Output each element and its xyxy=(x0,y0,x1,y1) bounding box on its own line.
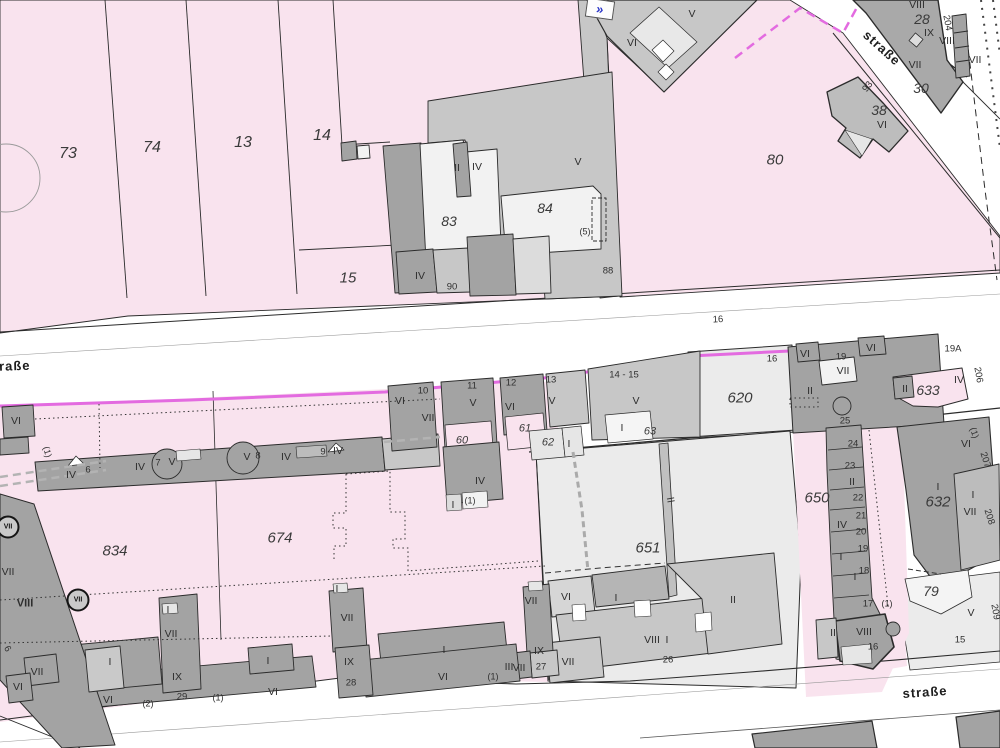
cadastral-map-canvas[interactable]: straßestraßestraße7374131415802830388384… xyxy=(0,0,1000,748)
map-base-layer xyxy=(0,0,1000,748)
